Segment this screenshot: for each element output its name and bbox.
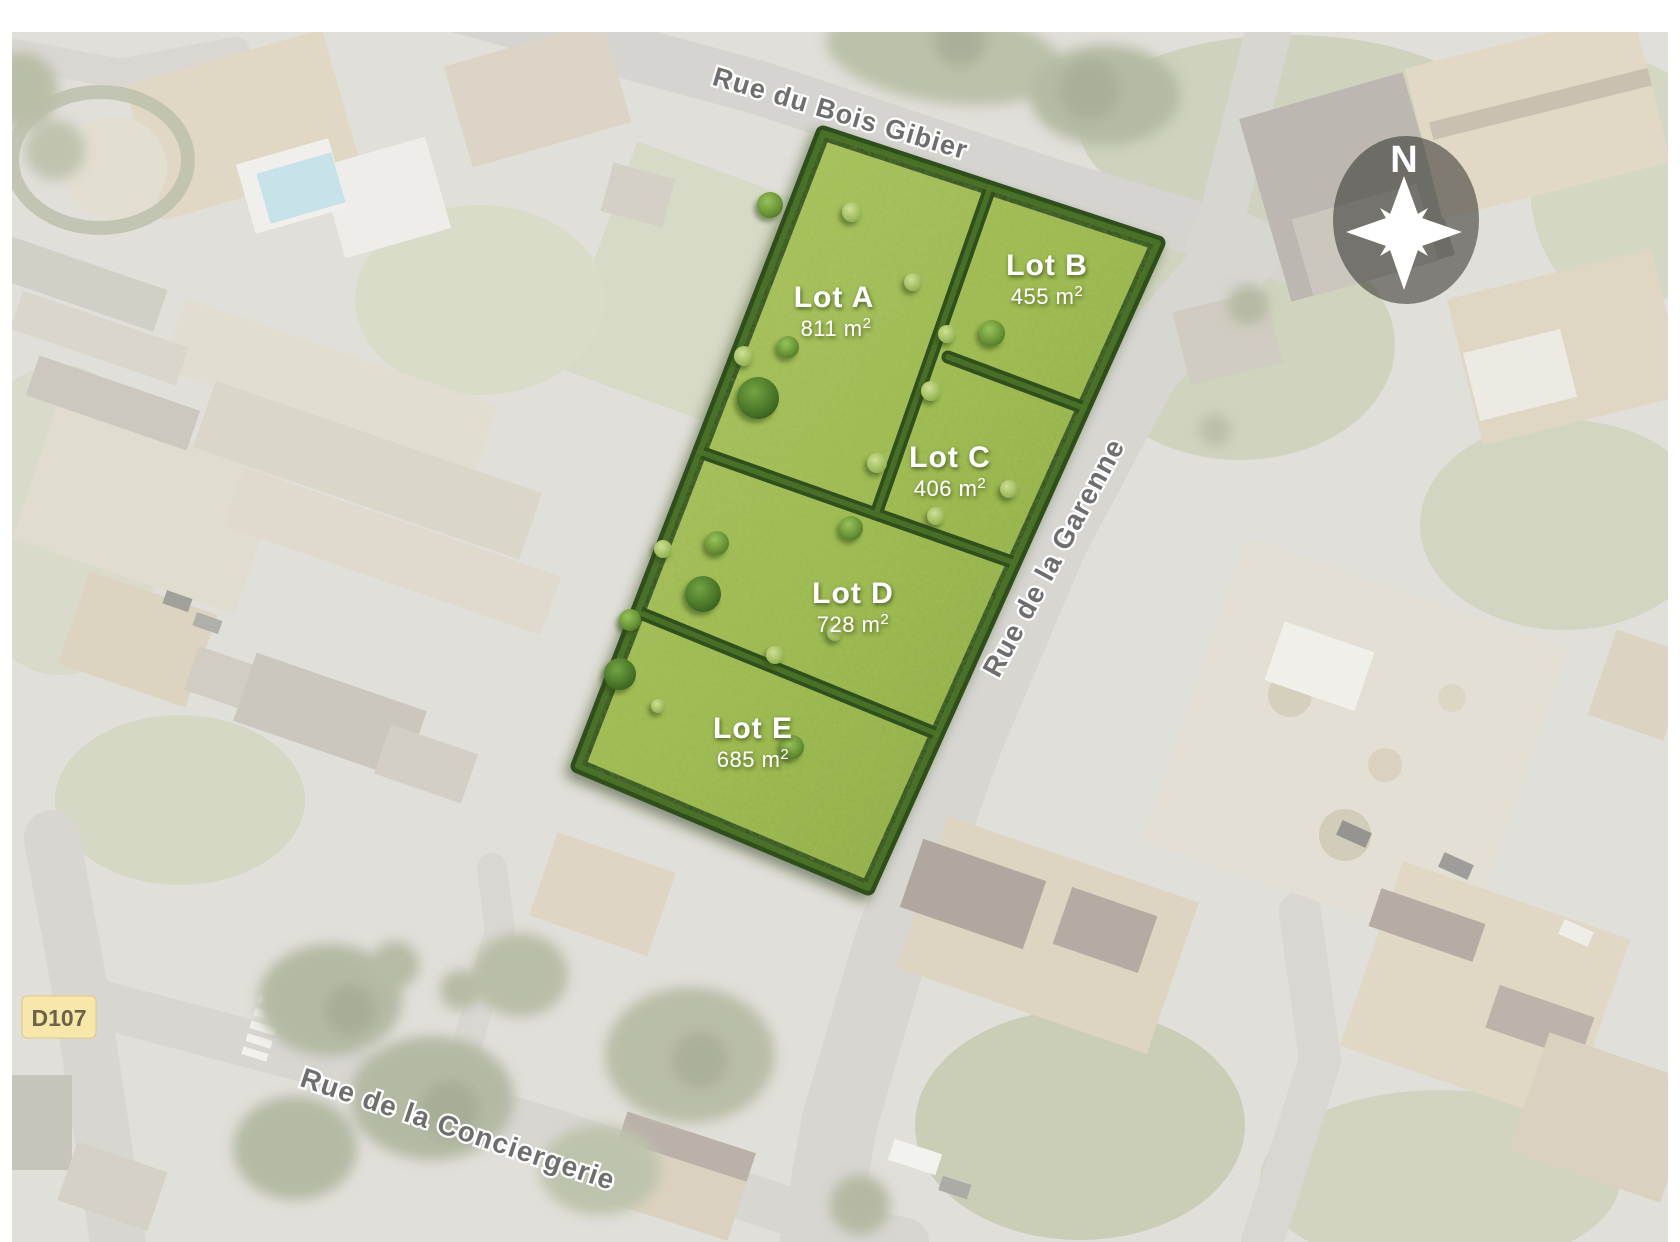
- bush-icon: [921, 381, 941, 401]
- tree-icon: [705, 531, 729, 555]
- lot-b-title: Lot B: [1006, 249, 1088, 282]
- lot-c-area: 406 m2: [914, 475, 987, 501]
- tree-icon: [839, 516, 863, 540]
- bush-icon: [734, 346, 754, 366]
- lot-a-area: 811 m2: [801, 315, 872, 341]
- lot-b-area: 455 m2: [1011, 283, 1084, 309]
- lot-a-title: Lot A: [794, 281, 875, 314]
- lot-e-area: 685 m2: [717, 746, 790, 772]
- bush-icon: [867, 453, 887, 473]
- bush-icon: [938, 325, 956, 343]
- bush-icon: [1000, 480, 1018, 498]
- aerial-lot-map: { "streets": { "bois_gibier": "Rue du Bo…: [0, 0, 1680, 1242]
- tree-icon: [685, 576, 721, 612]
- tree-icon: [979, 320, 1005, 346]
- tree-icon: [619, 609, 641, 631]
- bush-icon: [904, 273, 922, 291]
- lot-e-title: Lot E: [713, 712, 793, 745]
- road-badge-label: D107: [32, 1005, 87, 1031]
- compass-rose: N: [1333, 136, 1479, 304]
- bush-icon: [766, 646, 784, 664]
- tree-icon: [737, 377, 779, 419]
- bush-icon: [651, 699, 665, 713]
- bush-icon: [927, 507, 945, 525]
- bush-icon: [654, 540, 672, 558]
- lot-a-label-group: Lot A 811 m2: [794, 281, 875, 341]
- compass-north-label: N: [1390, 139, 1417, 181]
- lot-c-title: Lot C: [909, 441, 991, 474]
- tree-icon: [777, 336, 799, 358]
- tree-icon: [604, 658, 636, 690]
- tree-icon: [757, 192, 783, 218]
- bush-icon: [842, 202, 862, 222]
- lot-d-title: Lot D: [812, 577, 894, 610]
- road-badge-d107: D107: [22, 996, 96, 1038]
- lot-d-area: 728 m2: [817, 611, 890, 637]
